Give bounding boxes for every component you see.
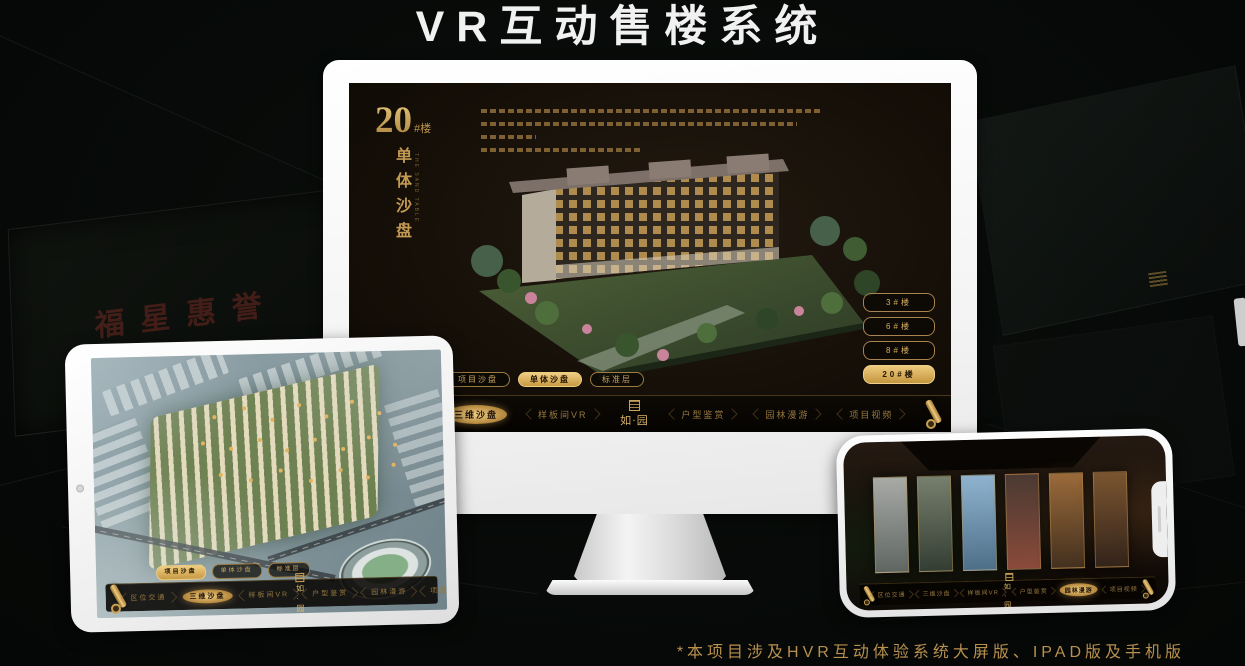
phone-screen: 区位交通三维沙盘样板间VR 如·园 户型鉴赏园林漫游项目视频 bbox=[843, 435, 1169, 611]
phone-device: 区位交通三维沙盘样板间VR 如·园 户型鉴赏园林漫游项目视频 bbox=[836, 428, 1176, 618]
gallery-panel[interactable] bbox=[1005, 473, 1041, 570]
building-subtitle-vertical: 单体沙盘 bbox=[389, 147, 413, 247]
floor-button-group: 3#楼6#楼8#楼20#楼 bbox=[863, 293, 935, 384]
floor-button[interactable]: 3#楼 bbox=[863, 293, 935, 312]
nav-item[interactable]: 三维沙盘 bbox=[182, 588, 232, 603]
nav-item[interactable]: 区位交通 bbox=[872, 587, 910, 601]
description-text-line bbox=[481, 122, 797, 126]
nav-group-left: 区位交通三维沙盘样板间VR bbox=[872, 585, 1004, 601]
building-render bbox=[427, 133, 897, 388]
nav-item[interactable]: 项目视频 bbox=[423, 582, 447, 597]
bg-screenshot-faint bbox=[969, 65, 1245, 336]
nav-item[interactable]: 户型鉴赏 bbox=[305, 585, 355, 600]
nav-group-left: 区位交通三维沙盘样板间VR bbox=[123, 587, 296, 605]
nav-item[interactable]: 样板间VR bbox=[241, 587, 296, 602]
logo-seal-icon bbox=[296, 573, 305, 582]
floor-button[interactable]: 6#楼 bbox=[863, 317, 935, 336]
building-number: 20 bbox=[375, 100, 412, 141]
monitor-stand-neck bbox=[574, 514, 726, 588]
tab[interactable]: 单体沙盘 bbox=[211, 563, 261, 579]
nav-item[interactable]: 项目视频 bbox=[840, 405, 902, 424]
phone-notch bbox=[1151, 481, 1168, 557]
tab-list: 项目沙盘单体沙盘标准层 bbox=[446, 372, 644, 387]
tablet-bezel: 项目沙盘单体沙盘标准层 区位交通三维沙盘样板间VR 如·园 户型鉴赏园林漫游项目… bbox=[65, 335, 460, 632]
floor-button[interactable]: 8#楼 bbox=[863, 341, 935, 360]
phone-bezel: 区位交通三维沙盘样板间VR 如·园 户型鉴赏园林漫游项目视频 bbox=[836, 428, 1176, 618]
building-title: 20#楼 bbox=[375, 99, 431, 142]
logo-seal-icon bbox=[1005, 573, 1013, 581]
tab[interactable]: 项目沙盘 bbox=[446, 372, 510, 387]
monitor-stand-base bbox=[544, 580, 756, 595]
gallery-panel[interactable] bbox=[961, 475, 997, 572]
nav-group-right: 户型鉴赏园林漫游项目视频 bbox=[1015, 582, 1143, 598]
gallery-panel[interactable] bbox=[1049, 472, 1085, 569]
nav-item[interactable]: 园林漫游 bbox=[364, 584, 414, 599]
bg-white-card-edge bbox=[1234, 298, 1245, 347]
gallery-panel[interactable] bbox=[917, 476, 953, 573]
scroll-icon[interactable] bbox=[926, 399, 939, 429]
bg-gold-logo-mark bbox=[1148, 271, 1168, 287]
page-title: VR互动售楼系统 bbox=[0, 0, 1245, 54]
gallery-panel[interactable] bbox=[1093, 471, 1129, 568]
nav-item[interactable]: 区位交通 bbox=[123, 590, 173, 605]
nav-item[interactable]: 项目视频 bbox=[1105, 582, 1143, 596]
gallery-panel-row bbox=[873, 471, 1129, 571]
building-subtitle-en: THE SAND TABLE bbox=[413, 153, 419, 223]
scroll-icon[interactable] bbox=[1143, 578, 1152, 598]
nav-item[interactable]: 三维沙盘 bbox=[917, 586, 955, 600]
page: 福星惠誉 VR互动售楼系统 20#楼 单体沙盘 THE SAND TABLE bbox=[0, 0, 1245, 666]
gallery-panel[interactable] bbox=[873, 477, 909, 574]
nav-item[interactable]: 样板间VR bbox=[529, 405, 597, 424]
footnote: *本项目涉及HVR互动体验系统大屏版、IPAD版及手机版 bbox=[677, 638, 1185, 662]
tablet-device: 项目沙盘单体沙盘标准层 区位交通三维沙盘样板间VR 如·园 户型鉴赏园林漫游项目… bbox=[65, 335, 460, 632]
nav-item[interactable]: 户型鉴赏 bbox=[1015, 584, 1053, 598]
floor-button[interactable]: 20#楼 bbox=[863, 365, 935, 384]
plaque-text: 福星惠誉 bbox=[94, 278, 278, 345]
nav-item[interactable]: 户型鉴赏 bbox=[672, 405, 734, 424]
tab[interactable]: 标准层 bbox=[590, 372, 644, 387]
logo-seal-icon bbox=[629, 400, 640, 411]
logo-text: 如·园 bbox=[620, 412, 649, 428]
logo-text: 如·园 bbox=[1004, 582, 1016, 610]
nav-group-right: 户型鉴赏园林漫游项目视频 bbox=[672, 405, 902, 424]
monitor-tab-row: 项目沙盘单体沙盘标准层 bbox=[429, 369, 644, 389]
nav-item[interactable]: 园林漫游 bbox=[756, 405, 818, 424]
nav-item[interactable]: 样板间VR bbox=[962, 585, 1004, 599]
tab[interactable]: 项目沙盘 bbox=[155, 564, 205, 580]
nav-item[interactable]: 园林漫游 bbox=[1060, 583, 1098, 597]
camera-icon bbox=[76, 484, 84, 492]
nav-group-right: 户型鉴赏园林漫游项目视频 bbox=[305, 582, 447, 600]
ruyuan-logo[interactable]: 如·园 bbox=[620, 400, 649, 428]
description-text-line bbox=[481, 109, 820, 113]
tab[interactable]: 单体沙盘 bbox=[518, 372, 582, 387]
tablet-screen: 项目沙盘单体沙盘标准层 区位交通三维沙盘样板间VR 如·园 户型鉴赏园林漫游项目… bbox=[91, 350, 447, 618]
